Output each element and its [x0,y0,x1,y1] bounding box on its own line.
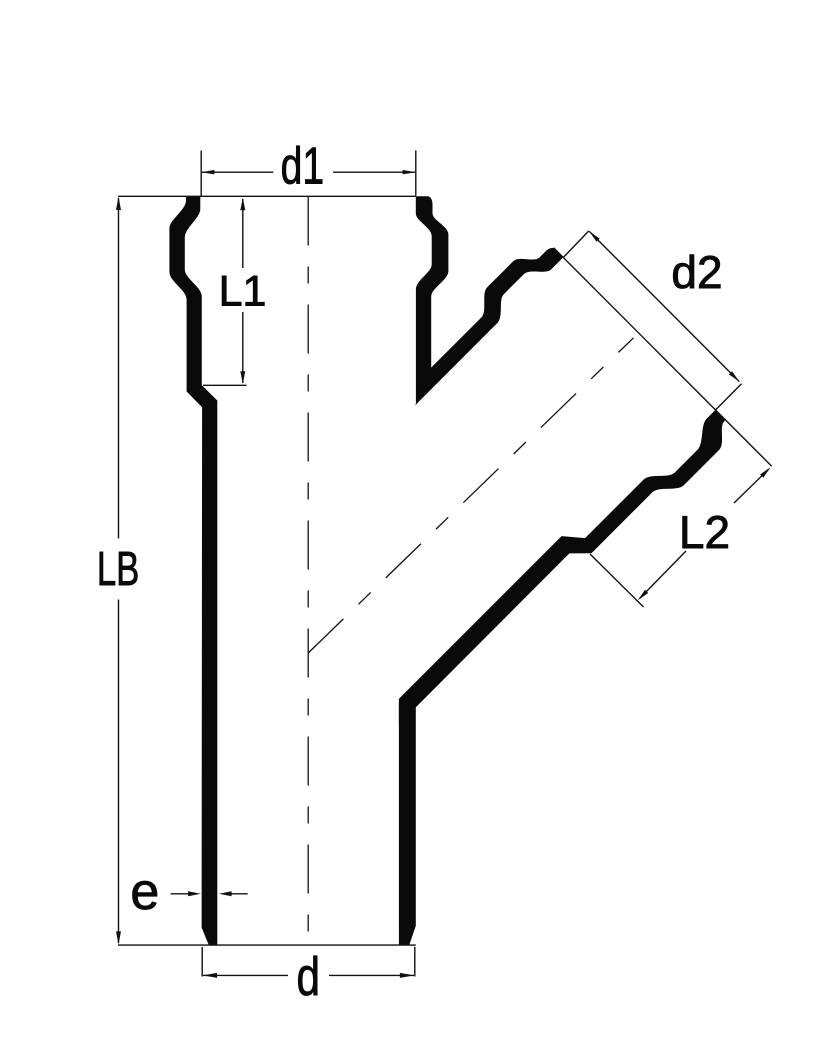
svg-text:L1: L1 [219,268,267,316]
svg-text:LB: LB [97,543,140,596]
svg-text:e: e [130,863,159,921]
svg-text:d1: d1 [281,138,325,196]
svg-text:L2: L2 [679,506,730,558]
svg-text:d2: d2 [671,246,722,298]
svg-text:d: d [296,947,320,1007]
